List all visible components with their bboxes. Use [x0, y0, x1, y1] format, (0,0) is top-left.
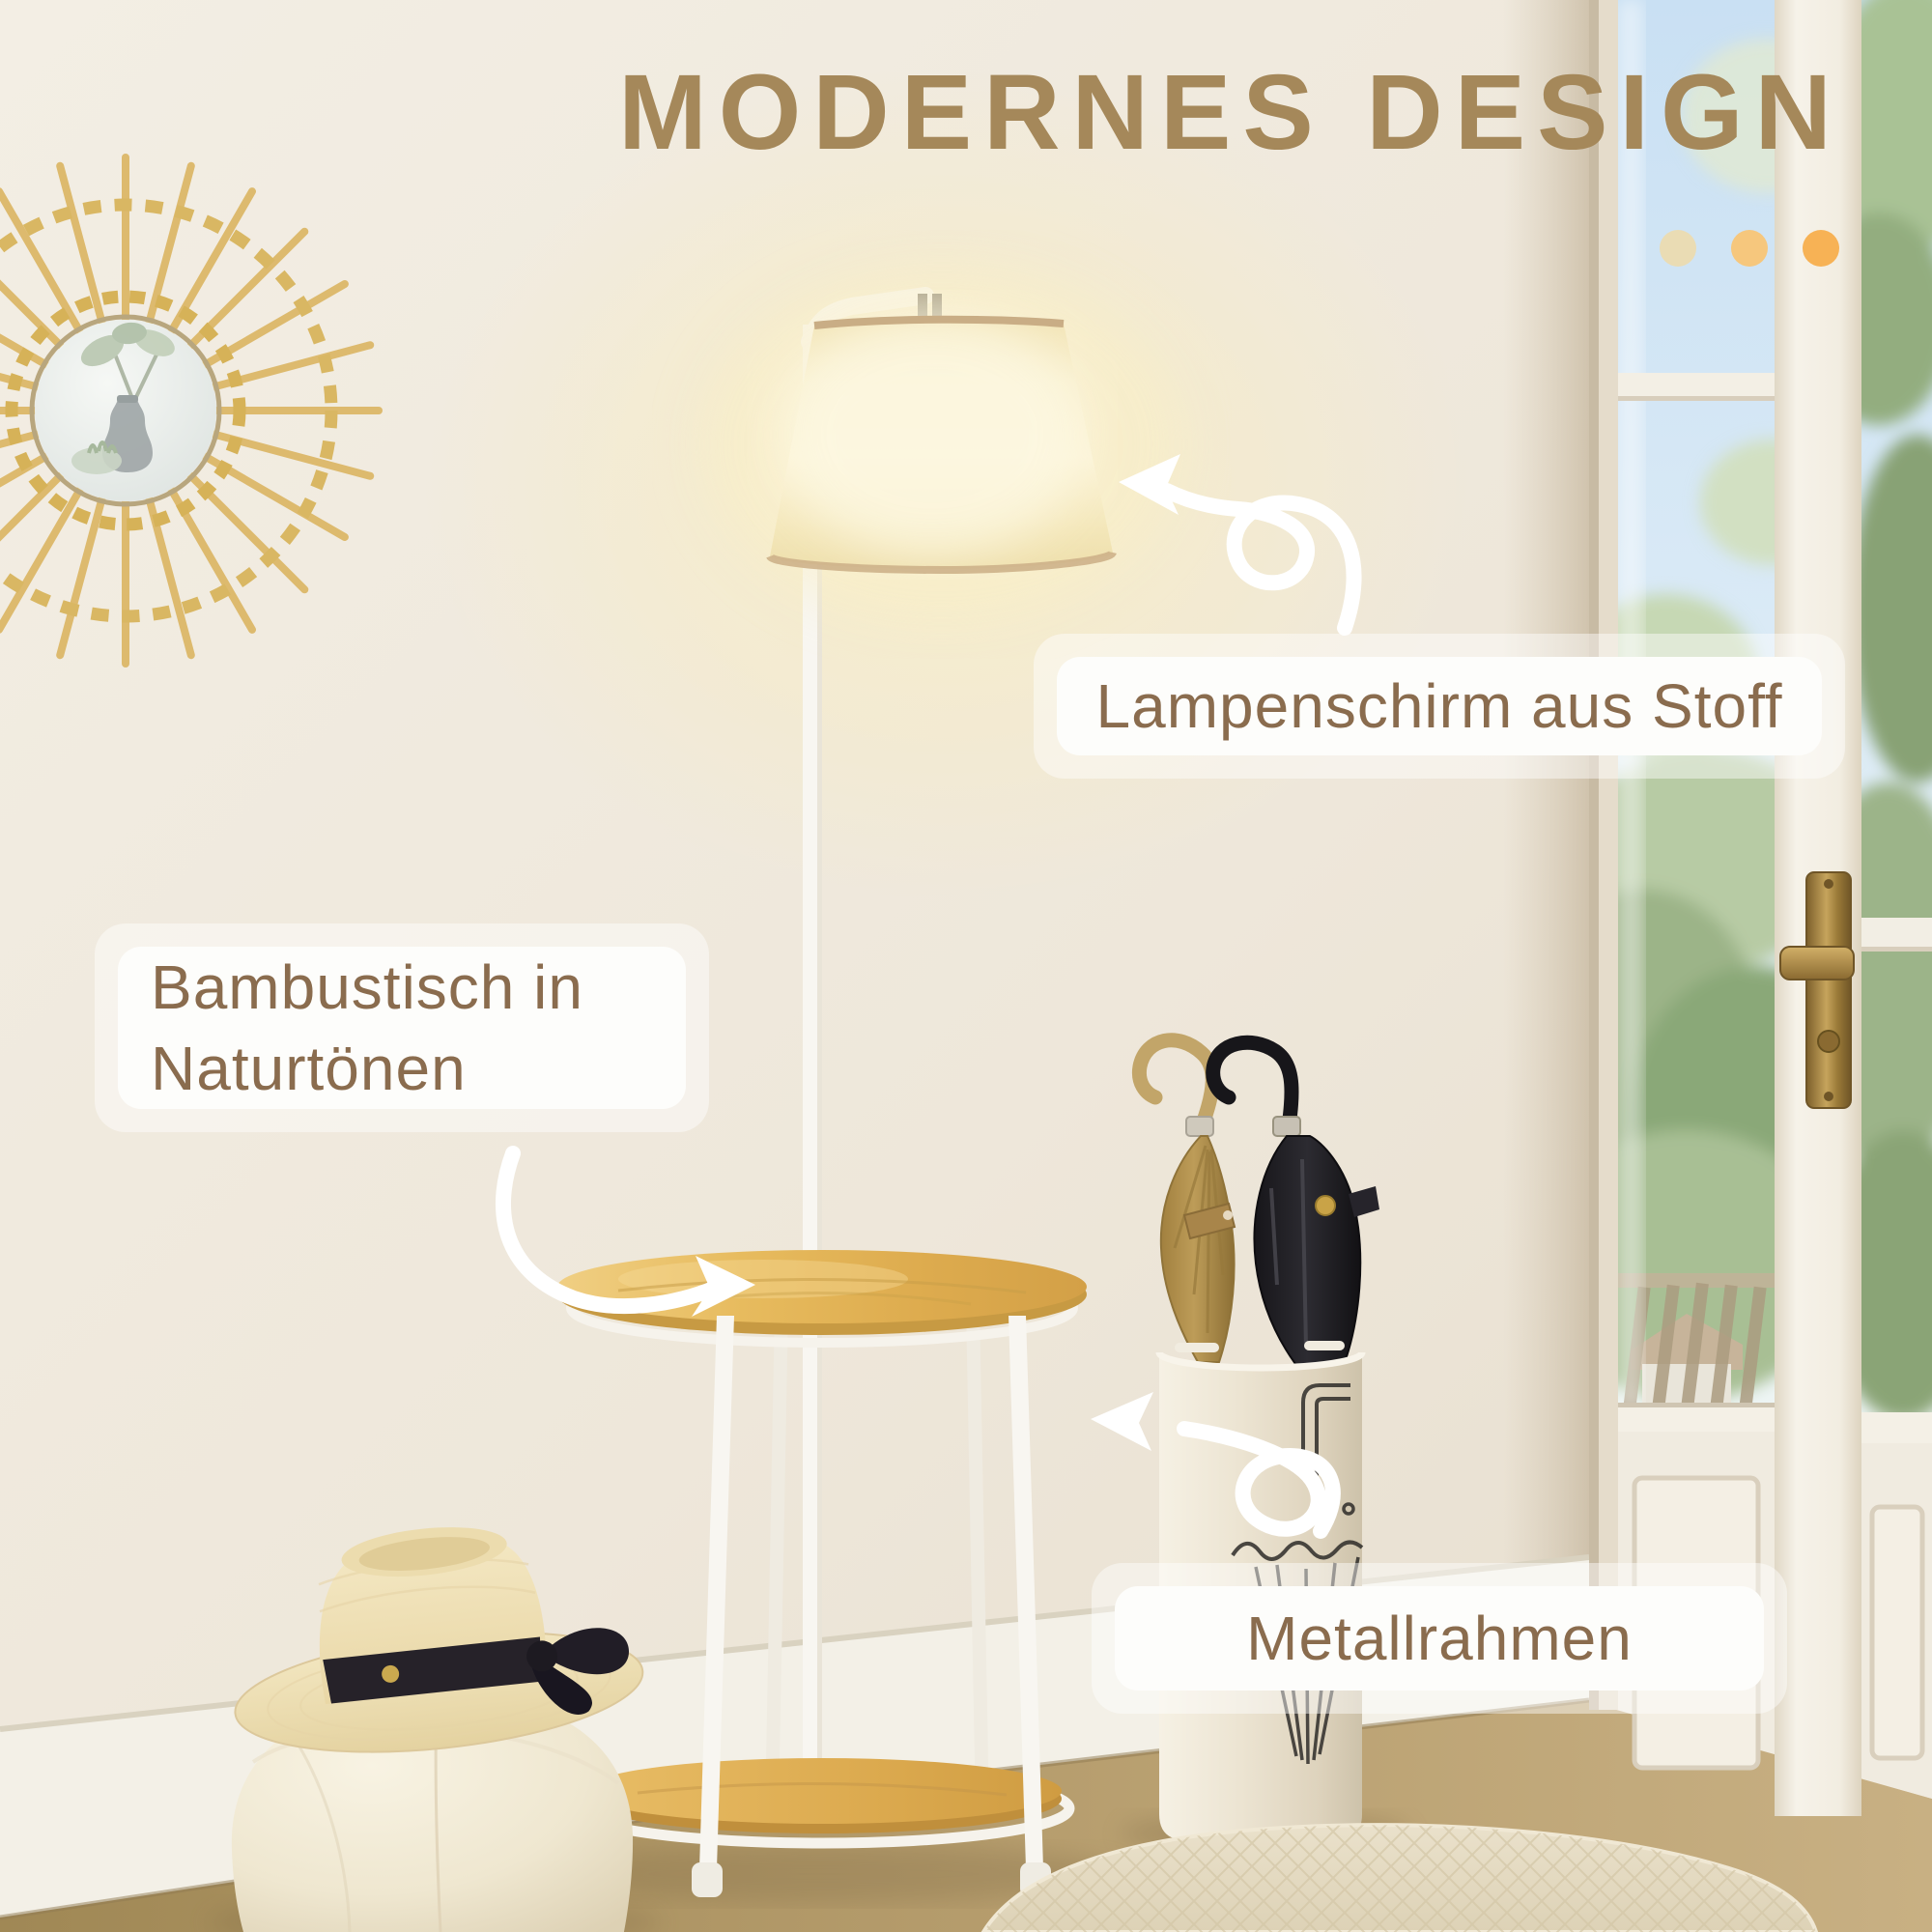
callout-table-line1: Bambustisch in: [151, 947, 583, 1028]
wall-corner-shadow: [1503, 0, 1590, 1715]
callout-frame-text: Metallrahmen: [1115, 1586, 1764, 1690]
callout-lampshade-text: Lampenschirm aus Stoff: [1057, 657, 1822, 755]
page-title: MODERNES DESIGN: [0, 54, 1843, 171]
lampshade: [700, 266, 1183, 623]
callout-lampshade: Lampenschirm aus Stoff: [1034, 634, 1845, 779]
decor-dot-icon: [1803, 230, 1839, 267]
callout-frame: Metallrahmen: [1092, 1563, 1787, 1714]
callout-table-line2: Naturtönen: [151, 1028, 467, 1109]
product-scene: MODERNES DESIGN Lampenschirm aus Stoff B…: [0, 0, 1932, 1932]
callout-table-text: Bambustisch in Naturtönen: [118, 947, 686, 1109]
callout-table: Bambustisch in Naturtönen: [95, 923, 709, 1132]
side-table-top: [557, 1250, 1087, 1343]
decor-dot-icon: [1660, 230, 1696, 267]
side-table-shelf: [575, 1758, 1069, 1843]
decor-dot-icon: [1731, 230, 1768, 267]
